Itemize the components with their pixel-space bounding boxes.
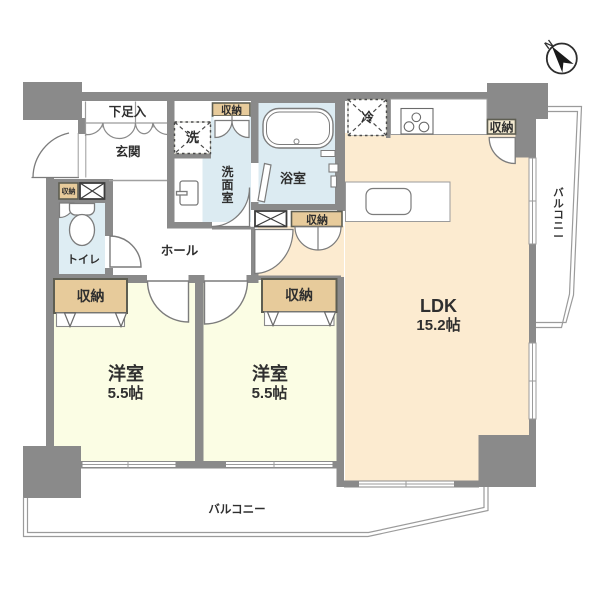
svg-text:玄関: 玄関 <box>115 144 140 159</box>
svg-text:面: 面 <box>221 178 233 192</box>
svg-text:浴室: 浴室 <box>280 171 306 186</box>
svg-text:収納: 収納 <box>77 288 105 304</box>
svg-text:15.2帖: 15.2帖 <box>416 316 460 334</box>
svg-text:収納: 収納 <box>285 287 313 303</box>
svg-text:収納: 収納 <box>62 187 76 196</box>
svg-text:ホール: ホール <box>161 244 199 258</box>
svg-text:バルコニー: バルコニー <box>208 503 265 516</box>
svg-text:洗: 洗 <box>186 130 199 145</box>
svg-text:5.5帖: 5.5帖 <box>108 384 144 402</box>
svg-text:LDK: LDK <box>420 296 457 316</box>
svg-text:冷: 冷 <box>361 110 374 125</box>
svg-text:室: 室 <box>221 190 233 205</box>
svg-text:収納: 収納 <box>221 104 242 117</box>
svg-text:洋室: 洋室 <box>108 363 144 384</box>
svg-text:下足入: 下足入 <box>109 105 147 119</box>
svg-text:トイレ: トイレ <box>67 253 100 266</box>
svg-text:5.5帖: 5.5帖 <box>252 384 288 402</box>
svg-text:収納: 収納 <box>489 120 513 135</box>
svg-text:洗: 洗 <box>221 164 233 179</box>
svg-text:ー: ー <box>553 231 564 243</box>
svg-text:洋室: 洋室 <box>252 363 288 384</box>
svg-text:収納: 収納 <box>306 213 328 227</box>
